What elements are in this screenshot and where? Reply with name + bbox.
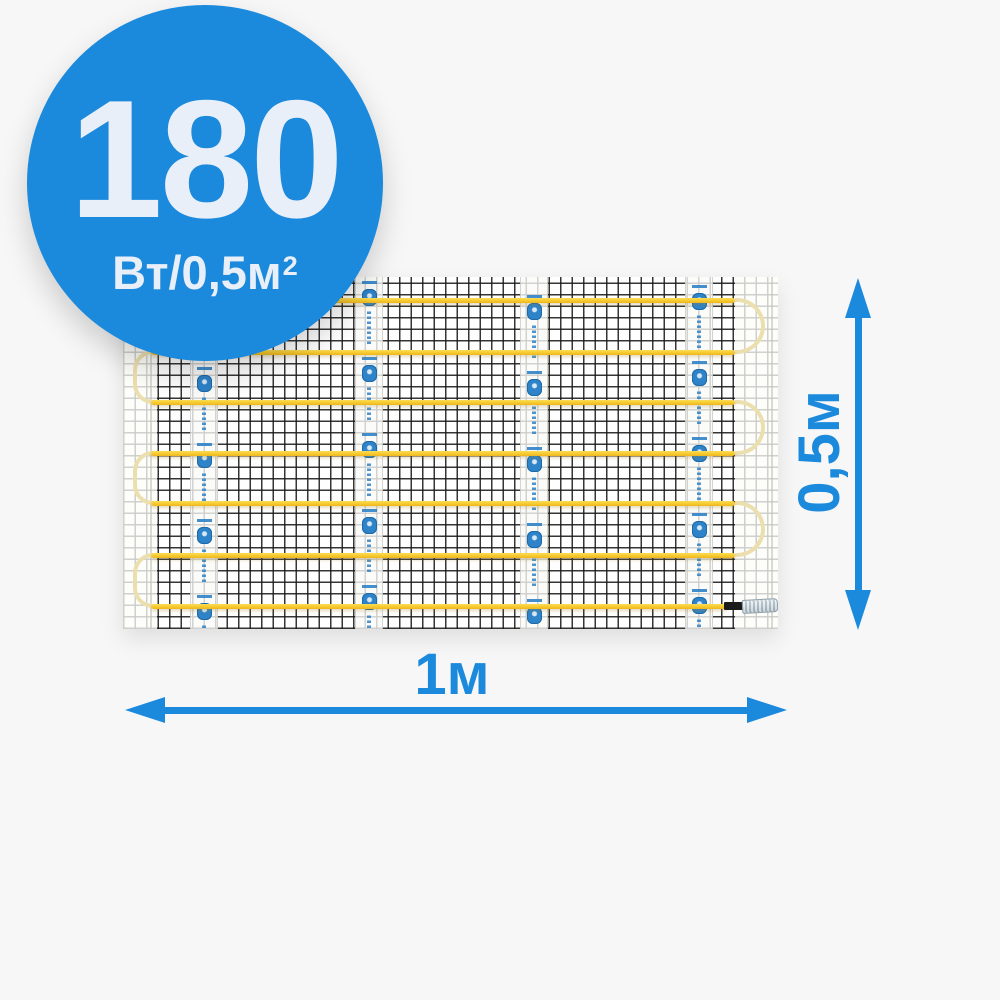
cable-loop-left — [133, 451, 153, 505]
arrow-left-head-icon — [125, 697, 165, 723]
width-arrow-shaft — [159, 707, 753, 714]
power-unit: Вт/0,5м2 — [27, 249, 383, 303]
selvedge-seam — [771, 277, 773, 629]
brand-stamp-icon — [196, 367, 212, 430]
arrow-right-head-icon — [747, 697, 787, 723]
height-label: 0,5м — [790, 352, 850, 552]
power-connector-icon — [742, 598, 778, 614]
brand-stamp-icon — [361, 433, 377, 496]
brand-stamp-icon — [196, 595, 212, 629]
cable-loop-left — [133, 553, 153, 608]
brand-stamp-icon — [196, 519, 212, 582]
height-arrow-shaft — [855, 312, 862, 596]
cable-loop-left — [133, 350, 153, 404]
brand-stamp-icon — [691, 285, 707, 348]
width-label: 1м — [352, 645, 552, 705]
page: { "badge": { "value": "180", "unit_main"… — [0, 0, 1000, 1000]
power-value: 180 — [27, 75, 383, 243]
heating-cable-row — [151, 451, 735, 456]
brand-stamp-icon — [691, 361, 707, 424]
brand-stamp-icon — [361, 357, 377, 420]
power-unit-text: Вт/0,5м — [112, 246, 282, 299]
brand-stamp-icon — [361, 509, 377, 572]
heating-cable-row — [151, 553, 735, 558]
heating-cable-row — [151, 604, 728, 609]
arrow-down-head-icon — [845, 590, 871, 630]
power-unit-superscript: 2 — [283, 250, 298, 281]
brand-stamp-icon — [691, 513, 707, 576]
arrow-up-head-icon — [845, 278, 871, 318]
heating-cable-row — [151, 400, 735, 405]
brand-stamp-icon — [691, 437, 707, 500]
heating-cable-row — [151, 501, 735, 506]
brand-stamp-icon — [691, 589, 707, 629]
brand-stamp-icon — [526, 295, 542, 358]
power-badge: 180 Вт/0,5м2 — [27, 5, 383, 361]
